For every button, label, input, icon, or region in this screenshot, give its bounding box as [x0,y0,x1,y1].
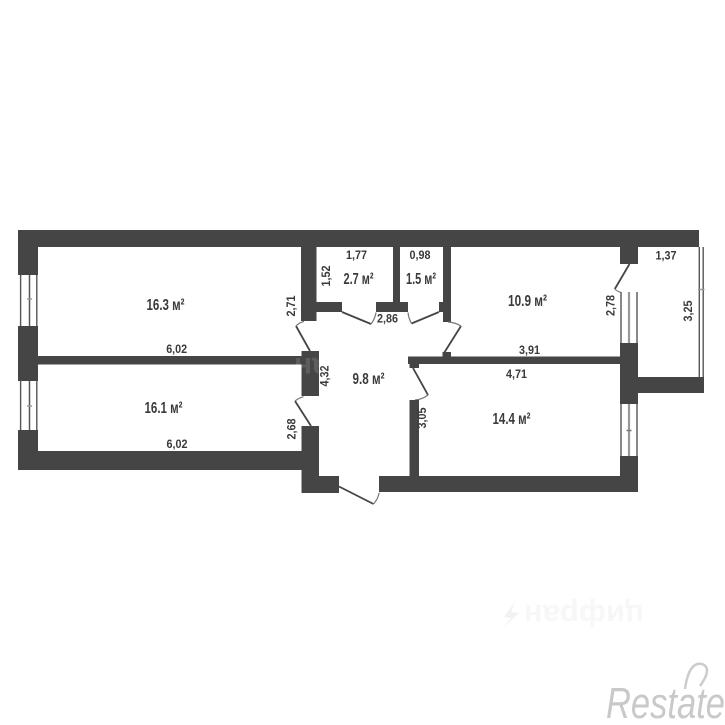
svg-text:14.4 м²: 14.4 м² [493,411,531,428]
svg-text:4,71: 4,71 [506,367,527,381]
svg-text:3,91: 3,91 [519,343,540,357]
svg-text:2,68: 2,68 [285,418,299,439]
svg-text:10.9 м²: 10.9 м² [508,293,547,310]
svg-text:0,98: 0,98 [410,248,431,262]
svg-text:Restate: Restate [606,679,725,725]
svg-text:1.5 м²: 1.5 м² [406,271,436,288]
svg-text:2,71: 2,71 [284,295,298,316]
svg-text:2,86: 2,86 [377,312,398,326]
svg-text:1,37: 1,37 [656,249,677,263]
svg-text:цифран: цифран [524,598,644,633]
svg-text:3,05: 3,05 [415,407,429,428]
svg-text:1,52: 1,52 [319,265,333,286]
svg-text:16.3 м²: 16.3 м² [147,297,185,314]
svg-text:1,77: 1,77 [346,248,367,262]
svg-text:цифран: цифран [294,351,410,384]
svg-text:16.1 м²: 16.1 м² [145,400,183,417]
svg-text:2.7 м²: 2.7 м² [344,271,374,288]
svg-text:3,25: 3,25 [681,300,695,321]
svg-text:6,02: 6,02 [167,437,188,451]
svg-text:6,02: 6,02 [166,342,187,356]
svg-text:2,78: 2,78 [604,295,618,316]
